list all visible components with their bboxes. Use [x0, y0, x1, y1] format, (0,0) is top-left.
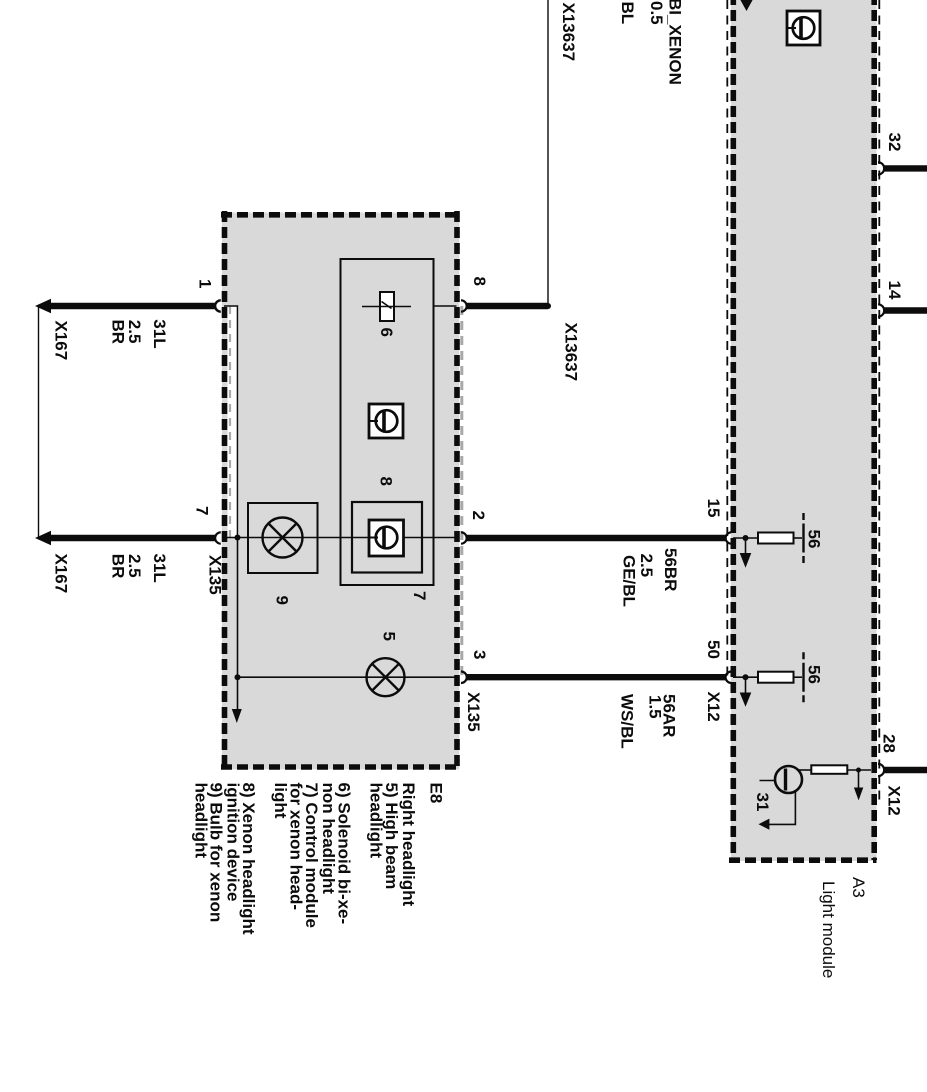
svg-text:BL: BL: [618, 2, 637, 25]
svg-text:7: 7: [193, 506, 212, 515]
svg-text:28: 28: [879, 734, 898, 753]
svg-text:5: 5: [380, 632, 399, 641]
svg-text:50: 50: [704, 640, 723, 659]
svg-text:56: 56: [805, 665, 824, 684]
svg-text:headlight: headlight: [367, 783, 386, 859]
svg-text:32: 32: [885, 133, 904, 152]
svg-text:31: 31: [753, 793, 772, 812]
svg-text:8: 8: [377, 477, 396, 486]
svg-text:2: 2: [469, 511, 488, 520]
svg-text:A3: A3: [849, 877, 868, 898]
svg-text:X13637: X13637: [559, 3, 578, 62]
svg-text:BR: BR: [109, 320, 128, 345]
svg-text:1.5: 1.5: [646, 695, 665, 719]
svg-text:X167: X167: [52, 554, 71, 594]
svg-text:WS/BL: WS/BL: [618, 694, 637, 749]
svg-text:0.5: 0.5: [647, 1, 666, 25]
svg-text:31L: 31L: [150, 554, 169, 583]
svg-text:X135: X135: [206, 555, 225, 595]
svg-text:Light module: Light module: [819, 881, 838, 978]
svg-text:GE/BL: GE/BL: [620, 555, 639, 607]
svg-text:7: 7: [410, 591, 429, 600]
svg-text:BR: BR: [109, 554, 128, 579]
svg-text:X135: X135: [464, 692, 483, 732]
svg-text:56: 56: [805, 530, 824, 549]
svg-text:X13637: X13637: [561, 323, 580, 382]
svg-text:light: light: [271, 783, 290, 819]
svg-text:E8: E8: [426, 783, 445, 804]
svg-text:headlight: headlight: [191, 783, 210, 859]
svg-text:1: 1: [196, 279, 215, 288]
svg-text:9: 9: [273, 596, 292, 605]
svg-text:X12: X12: [704, 692, 723, 722]
svg-text:14: 14: [885, 281, 904, 300]
svg-text:X12: X12: [885, 786, 904, 816]
svg-text:6: 6: [377, 328, 396, 337]
svg-text:8: 8: [470, 277, 489, 286]
svg-text:2.5: 2.5: [637, 554, 656, 578]
svg-text:56BR: 56BR: [661, 548, 680, 591]
svg-text:BI_XENON: BI_XENON: [666, 0, 685, 85]
svg-text:X167: X167: [52, 321, 71, 361]
svg-text:3: 3: [470, 650, 489, 659]
svg-text:15: 15: [704, 499, 723, 518]
svg-text:31L: 31L: [150, 319, 169, 348]
